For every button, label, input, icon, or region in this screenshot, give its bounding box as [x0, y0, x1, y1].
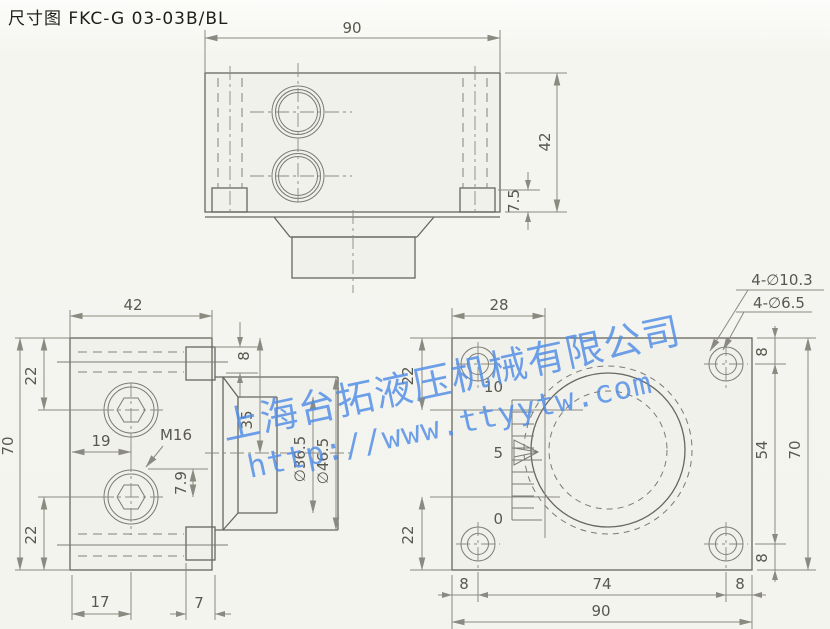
dim-side-width: 42: [123, 296, 142, 314]
drawing-title: 尺寸图 FKC-G 03-03B/BL: [8, 9, 229, 29]
dim-top-height: 42: [536, 132, 554, 151]
scale-mark-5: 5: [493, 444, 503, 462]
dim-scale-offset: 28: [489, 296, 508, 314]
dim-step: 7.9: [172, 471, 190, 495]
dim-front-total-width: 90: [591, 602, 610, 620]
dim-port-center: 19: [91, 432, 110, 450]
thread-note: M16: [160, 426, 192, 444]
scale-mark-0: 0: [493, 510, 503, 528]
dim-right-bottom: 8: [753, 553, 771, 563]
hole-note-inner: 4-∅6.5: [753, 294, 805, 312]
dim-hole-span-h: 74: [592, 575, 611, 593]
hole-note-outer: 4-∅10.3: [751, 271, 812, 289]
dim-bottom-left-8: 8: [459, 575, 469, 593]
dim-side-bottom-offset: 22: [22, 525, 40, 544]
dim-boss-height: 8: [235, 351, 253, 361]
dim-top-foot: 7.5: [505, 189, 523, 213]
dim-side-height: 70: [0, 436, 17, 455]
dim-side-top-offset: 22: [22, 366, 40, 385]
dim-bottom-right-8: 8: [735, 575, 745, 593]
dim-front-total-height: 70: [786, 440, 804, 459]
dim-bottom-right: 7: [194, 594, 204, 612]
dimension-drawing: 尺寸图 FKC-G 03-03B/BL: [0, 0, 830, 629]
dim-right-top: 8: [753, 347, 771, 357]
dim-top-width: 90: [342, 19, 361, 37]
dim-front-bottom-offset: 22: [399, 525, 417, 544]
top-view: 90 42 7.5: [205, 19, 567, 293]
dim-bottom-left: 17: [90, 593, 109, 611]
dim-hole-span-v: 54: [753, 440, 771, 459]
